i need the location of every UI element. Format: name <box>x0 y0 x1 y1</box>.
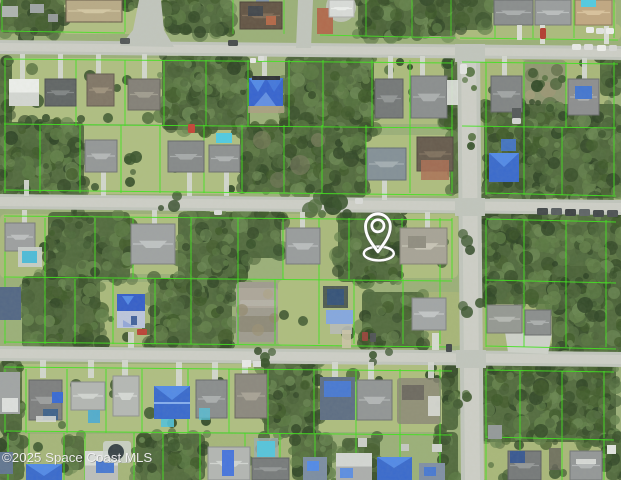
svg-text:©2025 Space Coast MLS: ©2025 Space Coast MLS <box>2 450 152 465</box>
